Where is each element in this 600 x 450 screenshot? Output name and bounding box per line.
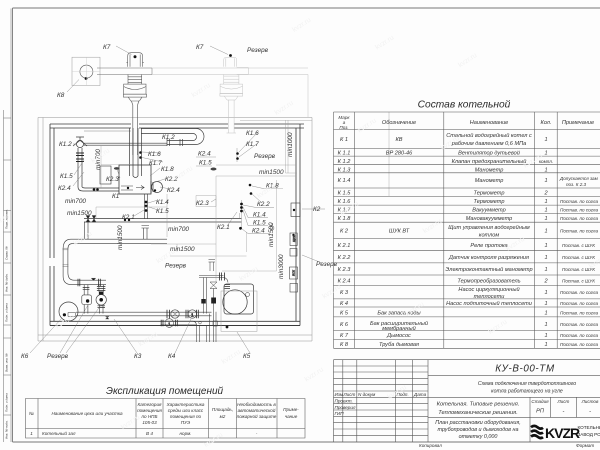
- svg-text:К1.2: К1.2: [59, 141, 72, 148]
- svg-text:Постав. по согла: Постав. по согла: [560, 311, 598, 316]
- svg-text:1: 1: [544, 208, 547, 214]
- svg-text:min1500: min1500: [259, 169, 284, 176]
- svg-text:КУ-В-00-ТМ: КУ-В-00-ТМ: [495, 364, 555, 375]
- svg-text:среды или класс: среды или класс: [168, 408, 204, 413]
- svg-text:Термометр: Термометр: [474, 191, 505, 197]
- svg-text:Подп. и дата: Подп. и дата: [5, 393, 9, 412]
- svg-text:Обозначение: Обозначение: [382, 120, 416, 126]
- svg-text:1: 1: [544, 151, 547, 157]
- svg-text:котлом: котлом: [479, 233, 500, 239]
- svg-text:Клапан предохранительный: Клапан предохранительный: [452, 158, 527, 165]
- svg-text:Постав. по согла: Постав. по согла: [560, 216, 598, 221]
- svg-text:Вакуумметр: Вакуумметр: [472, 208, 506, 214]
- svg-text:Труба дымовая: Труба дымовая: [379, 342, 419, 348]
- svg-text:1: 1: [544, 333, 547, 339]
- svg-text:Щит управления водогрейным: Щит управления водогрейным: [448, 224, 530, 231]
- svg-text:Постав. по согла: Постав. по согла: [560, 229, 598, 234]
- svg-text:Резерв: Резерв: [254, 153, 276, 160]
- svg-text:К2.4: К2.4: [58, 185, 71, 192]
- svg-text:Наименование: Наименование: [470, 120, 509, 126]
- svg-text:трубопроводов и дымоходов на: трубопроводов и дымоходов на: [438, 427, 519, 433]
- svg-text:Дата: Дата: [413, 392, 427, 397]
- svg-text:Экспликация помещений: Экспликация помещений: [106, 386, 224, 397]
- svg-text:Схема подключения твердотоплив: Схема подключения твердотопливного: [478, 381, 576, 387]
- svg-text:Подп. и дата: Подп. и дата: [5, 303, 9, 322]
- svg-text:min700: min700: [168, 226, 189, 233]
- svg-text:К1.8: К1.8: [161, 166, 174, 173]
- svg-text:KVZR: KVZR: [545, 425, 580, 441]
- svg-text:Взам. инв. №: Взам. инв. №: [5, 353, 9, 372]
- svg-text:поз. К 2.3: поз. К 2.3: [566, 182, 587, 187]
- svg-text:Манометр: Манометр: [475, 167, 504, 173]
- svg-text:1: 1: [544, 290, 547, 296]
- svg-text:План расстановки оборудования,: План расстановки оборудования,: [435, 420, 521, 426]
- svg-text:Резерв: Резерв: [47, 353, 69, 360]
- svg-text:котла работающего на угле: котла работающего на угле: [491, 389, 563, 395]
- svg-text:ШУК ВТ: ШУК ВТ: [389, 229, 410, 235]
- svg-text:К 1.8: К 1.8: [338, 216, 352, 222]
- svg-text:Допускается зам: Допускается зам: [559, 176, 599, 181]
- svg-text:Постав. по согла: Постав. по согла: [560, 322, 598, 327]
- svg-text:Изм: Изм: [335, 392, 344, 397]
- svg-text:К1.5: К1.5: [60, 173, 73, 180]
- svg-text:ВСК: ВСК: [292, 270, 296, 276]
- svg-text:К7: К7: [196, 44, 204, 51]
- svg-text:1: 1: [544, 267, 547, 273]
- svg-text:К 8: К 8: [340, 342, 349, 348]
- svg-text:1: 1: [544, 342, 547, 348]
- svg-text:мембранный: мембранный: [382, 325, 415, 332]
- svg-text:Постав. по согла: Постав. по согла: [560, 208, 598, 213]
- svg-text:Вентилятор дутьевой: Вентилятор дутьевой: [458, 150, 520, 157]
- svg-text:чание: чание: [285, 414, 298, 419]
- svg-text:Наименование цеха или участка: Наименование цеха или участка: [51, 411, 123, 416]
- svg-text:К 1.2: К 1.2: [338, 159, 352, 165]
- svg-text:min1500: min1500: [67, 210, 92, 217]
- svg-text:Характеристика: Характеристика: [166, 402, 205, 407]
- svg-text:К5: К5: [243, 353, 251, 360]
- svg-text:КВ: КВ: [395, 137, 402, 143]
- svg-text:ЗАВОД РОССИИ: ЗАВОД РОССИИ: [578, 432, 600, 437]
- svg-text:N докум: N докум: [358, 392, 376, 397]
- svg-text:м2: м2: [220, 414, 226, 419]
- svg-text:Состав котельной: Состав котельной: [418, 100, 511, 111]
- svg-text:Категория: Категория: [138, 402, 163, 407]
- svg-text:№: №: [29, 411, 34, 416]
- svg-text:КОТЕЛЬНЫЙ: КОТЕЛЬНЫЙ: [578, 423, 600, 430]
- svg-text:ПУЭ: ПУЭ: [181, 420, 191, 425]
- svg-text:Проверил: Проверил: [335, 405, 356, 410]
- svg-text:Насос подпиточный теплосети: Насос подпиточный теплосети: [446, 300, 532, 307]
- svg-text:Резерв: Резерв: [165, 263, 187, 270]
- svg-text:Примечание: Примечание: [562, 120, 594, 126]
- svg-text:Постав. по согла: Постав. по согла: [560, 333, 598, 338]
- svg-text:Приме-: Приме-: [283, 407, 299, 412]
- svg-text:Проект.: Проект.: [335, 399, 353, 404]
- svg-text:1: 1: [191, 312, 194, 318]
- svg-text:Мановакуумметр: Мановакуумметр: [466, 216, 513, 222]
- svg-text:1: 1: [544, 322, 547, 328]
- svg-text:Термометр: Термометр: [474, 199, 505, 205]
- svg-text:рабочим давлением 0,6 МПа: рабочим давлением 0,6 МПа: [451, 141, 527, 147]
- svg-text:К3: К3: [134, 353, 142, 360]
- svg-text:по НПБ: по НПБ: [142, 414, 158, 419]
- svg-text:К2.4: К2.4: [198, 151, 211, 158]
- svg-text:Манометр: Манометр: [475, 178, 504, 184]
- svg-text:Постав. с ШУК: Постав. с ШУК: [562, 255, 595, 260]
- svg-text:Стальной водогрейный котел с: Стальной водогрейный котел с: [446, 132, 532, 139]
- svg-text:1: 1: [30, 431, 33, 436]
- svg-text:Тепломеханические решения.: Тепломеханические решения.: [438, 410, 518, 416]
- svg-text:К 1.5: К 1.5: [338, 191, 352, 197]
- svg-text:К 2.3: К 2.3: [338, 267, 352, 273]
- svg-text:К 2.1: К 2.1: [338, 243, 351, 249]
- svg-text:теплосети: теплосети: [474, 294, 505, 300]
- svg-text:К2.1: К2.1: [217, 224, 230, 231]
- svg-text:-: -: [562, 409, 564, 415]
- svg-text:Реле протока: Реле протока: [470, 243, 507, 249]
- svg-text:В 4: В 4: [146, 431, 153, 436]
- svg-text:Дымосос: Дымосос: [386, 333, 411, 339]
- svg-text:РП: РП: [536, 409, 545, 415]
- svg-text:Формат: Формат: [576, 443, 594, 448]
- svg-text:Площадь,: Площадь,: [212, 407, 233, 412]
- svg-text:Необходимость в: Необходимость в: [237, 402, 276, 407]
- svg-text:Постав. по согла: Постав. по согла: [560, 342, 598, 347]
- svg-text:1: 1: [168, 321, 171, 326]
- svg-text:1: 1: [544, 199, 547, 205]
- svg-text:min3000: min3000: [278, 254, 285, 279]
- svg-text:1: 1: [544, 229, 547, 235]
- svg-text:К 4: К 4: [340, 301, 348, 307]
- svg-text:К1: К1: [112, 193, 120, 200]
- svg-text:Датчик контроля разряжения: Датчик контроля разряжения: [448, 255, 529, 261]
- svg-text:К2.1: К2.1: [122, 214, 135, 221]
- svg-text:min1000: min1000: [287, 132, 294, 157]
- svg-text:-: -: [589, 409, 591, 415]
- svg-text:К2.4: К2.4: [167, 187, 180, 194]
- svg-text:К1.6: К1.6: [148, 151, 161, 158]
- svg-text:Насос циркуляционный: Насос циркуляционный: [458, 286, 519, 293]
- svg-text:К 1.4: К 1.4: [338, 178, 351, 184]
- svg-text:К 2: К 2: [340, 229, 349, 235]
- svg-text:ГИП: ГИП: [335, 411, 345, 416]
- svg-text:К2.2: К2.2: [257, 201, 270, 208]
- svg-text:ЩУК: ЩУК: [292, 235, 296, 242]
- svg-text:К2.3: К2.3: [106, 176, 119, 183]
- svg-text:Поз.: Поз.: [339, 125, 348, 130]
- svg-text:пожарной защите: пожарной защите: [237, 413, 277, 419]
- svg-text:К 7: К 7: [340, 333, 349, 339]
- svg-text:Кол.: Кол.: [541, 120, 552, 126]
- svg-text:К 1.3: К 1.3: [338, 167, 352, 173]
- svg-text:min700: min700: [65, 198, 86, 205]
- svg-text:К2: К2: [313, 206, 321, 213]
- svg-text:1: 1: [544, 178, 547, 184]
- svg-text:К1.6: К1.6: [246, 130, 259, 137]
- svg-text:1: 1: [544, 167, 547, 173]
- svg-text:1: 1: [544, 137, 547, 143]
- svg-text:норм.: норм.: [179, 431, 191, 436]
- svg-text:К1.5: К1.5: [156, 208, 169, 215]
- svg-text:min1500: min1500: [117, 225, 124, 250]
- svg-text:Листов: Листов: [581, 399, 599, 404]
- svg-text:К8: К8: [57, 92, 65, 99]
- svg-text:1: 1: [544, 311, 547, 317]
- svg-text:Электроконтактный манометр: Электроконтактный манометр: [445, 266, 532, 273]
- svg-text:Стадия: Стадия: [531, 399, 549, 404]
- svg-text:Лист: Лист: [556, 399, 569, 404]
- svg-text:К1.5: К1.5: [199, 160, 212, 167]
- svg-text:ВР 280-46: ВР 280-46: [386, 151, 413, 157]
- svg-text:Постав. по согла: Постав. по согла: [560, 199, 598, 204]
- svg-text:Резерв: Резерв: [247, 47, 269, 54]
- svg-text:К 1.1: К 1.1: [338, 151, 351, 157]
- svg-text:Копировал: Копировал: [419, 443, 442, 448]
- svg-text:1: 1: [544, 243, 547, 249]
- svg-text:К2.3: К2.3: [196, 200, 209, 207]
- svg-text:автоматической: автоматической: [238, 407, 276, 413]
- svg-text:min1500: min1500: [268, 222, 275, 247]
- svg-text:Инв. № дубл.: Инв. № дубл.: [5, 273, 9, 292]
- svg-text:Котельная. Типовые решения.: Котельная. Типовые решения.: [437, 402, 520, 408]
- svg-text:1: 1: [544, 255, 547, 261]
- svg-text:1: 1: [544, 216, 547, 222]
- svg-text:К6: К6: [21, 353, 29, 360]
- svg-text:Постав. с ШУК: Постав. с ШУК: [562, 243, 595, 248]
- svg-text:К1.2: К1.2: [162, 134, 175, 141]
- svg-text:К 3: К 3: [340, 290, 349, 296]
- svg-text:К 2.2: К 2.2: [338, 255, 352, 261]
- svg-text:Термопреобразователь: Термопреобразователь: [457, 279, 520, 285]
- svg-text:отметку 0,000: отметку 0,000: [459, 434, 498, 440]
- svg-text:К 6: К 6: [340, 322, 349, 328]
- svg-text:К 5: К 5: [340, 311, 349, 317]
- svg-text:Лист: Лист: [343, 392, 356, 397]
- svg-text:К 2.4: К 2.4: [338, 279, 351, 285]
- svg-text:Инв. № подл.: Инв. № подл.: [5, 420, 9, 439]
- svg-text:Справ. №: Справ. №: [5, 246, 9, 260]
- svg-text:1: 1: [544, 301, 547, 307]
- svg-text:Постав. по согла: Постав. по согла: [560, 290, 598, 295]
- svg-text:Постав. с ШУК: Постав. с ШУК: [562, 279, 595, 284]
- svg-text:К 1: К 1: [340, 137, 348, 143]
- svg-text:Котельный зал: Котельный зал: [42, 430, 76, 436]
- svg-text:К7: К7: [103, 44, 111, 51]
- svg-text:К4: К4: [168, 353, 176, 360]
- svg-text:Постав. по согла: Постав. по согла: [560, 301, 598, 306]
- svg-text:105-03: 105-03: [142, 420, 157, 425]
- svg-text:помещения: помещения: [137, 408, 162, 413]
- svg-text:помещения по: помещения по: [170, 414, 202, 419]
